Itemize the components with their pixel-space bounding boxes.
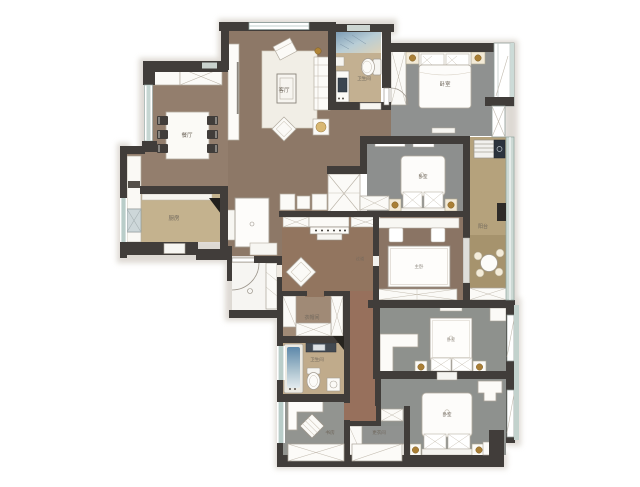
svg-text:卧室: 卧室 (419, 173, 428, 180)
svg-text:书房: 书房 (325, 429, 335, 436)
svg-text:卫生间: 卫生间 (357, 75, 371, 82)
svg-text:阳台: 阳台 (478, 223, 488, 230)
svg-text:客厅: 客厅 (278, 86, 290, 94)
svg-text:过道: 过道 (356, 255, 365, 262)
svg-text:更衣间: 更衣间 (372, 429, 386, 436)
svg-text:卧室: 卧室 (447, 336, 455, 343)
svg-text:厨房: 厨房 (168, 214, 180, 222)
svg-text:卧室: 卧室 (439, 80, 451, 88)
svg-text:衣帽间: 衣帽间 (304, 314, 319, 321)
svg-text:卫生间: 卫生间 (310, 356, 324, 363)
svg-text:主卧: 主卧 (415, 263, 424, 270)
svg-text:卧室: 卧室 (443, 411, 452, 418)
svg-text:餐厅: 餐厅 (181, 131, 193, 139)
